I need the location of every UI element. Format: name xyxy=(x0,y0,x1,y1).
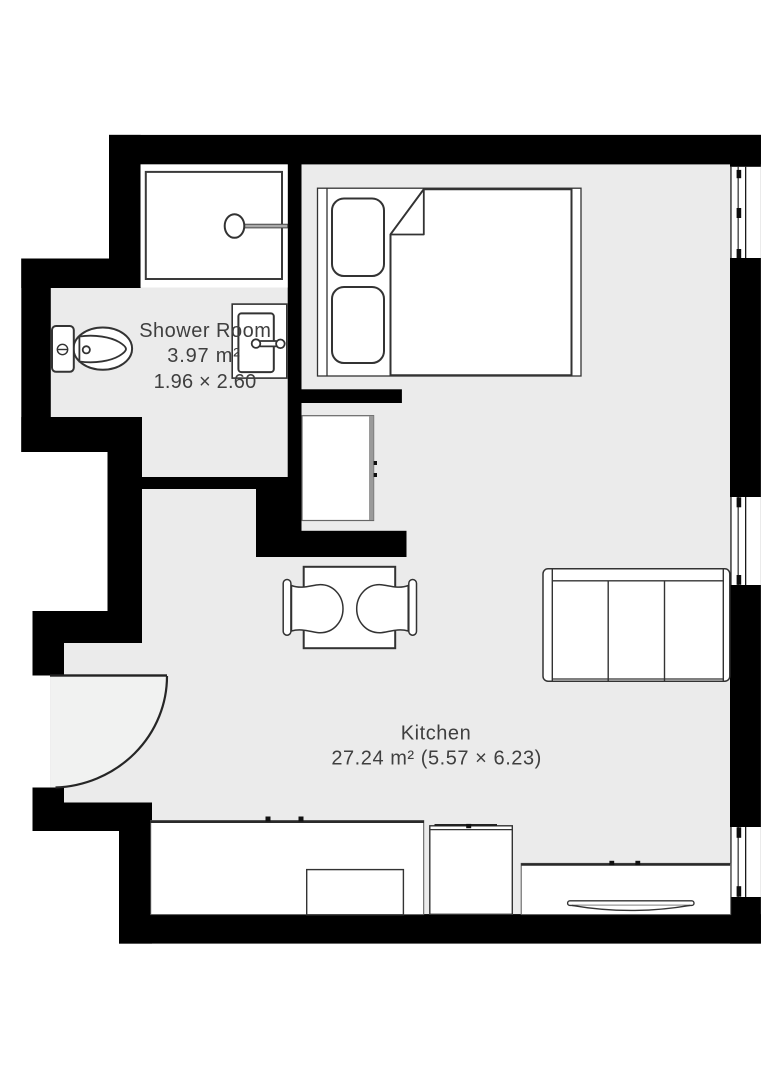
svg-text:27.24 m² (5.57 × 6.23): 27.24 m² (5.57 × 6.23) xyxy=(331,748,542,770)
svg-text:1.96 × 2.60: 1.96 × 2.60 xyxy=(154,371,257,393)
svg-text:Kitchen: Kitchen xyxy=(401,723,472,745)
svg-text:3.97 m²: 3.97 m² xyxy=(167,345,240,367)
svg-text:Shower Room: Shower Room xyxy=(139,320,271,342)
